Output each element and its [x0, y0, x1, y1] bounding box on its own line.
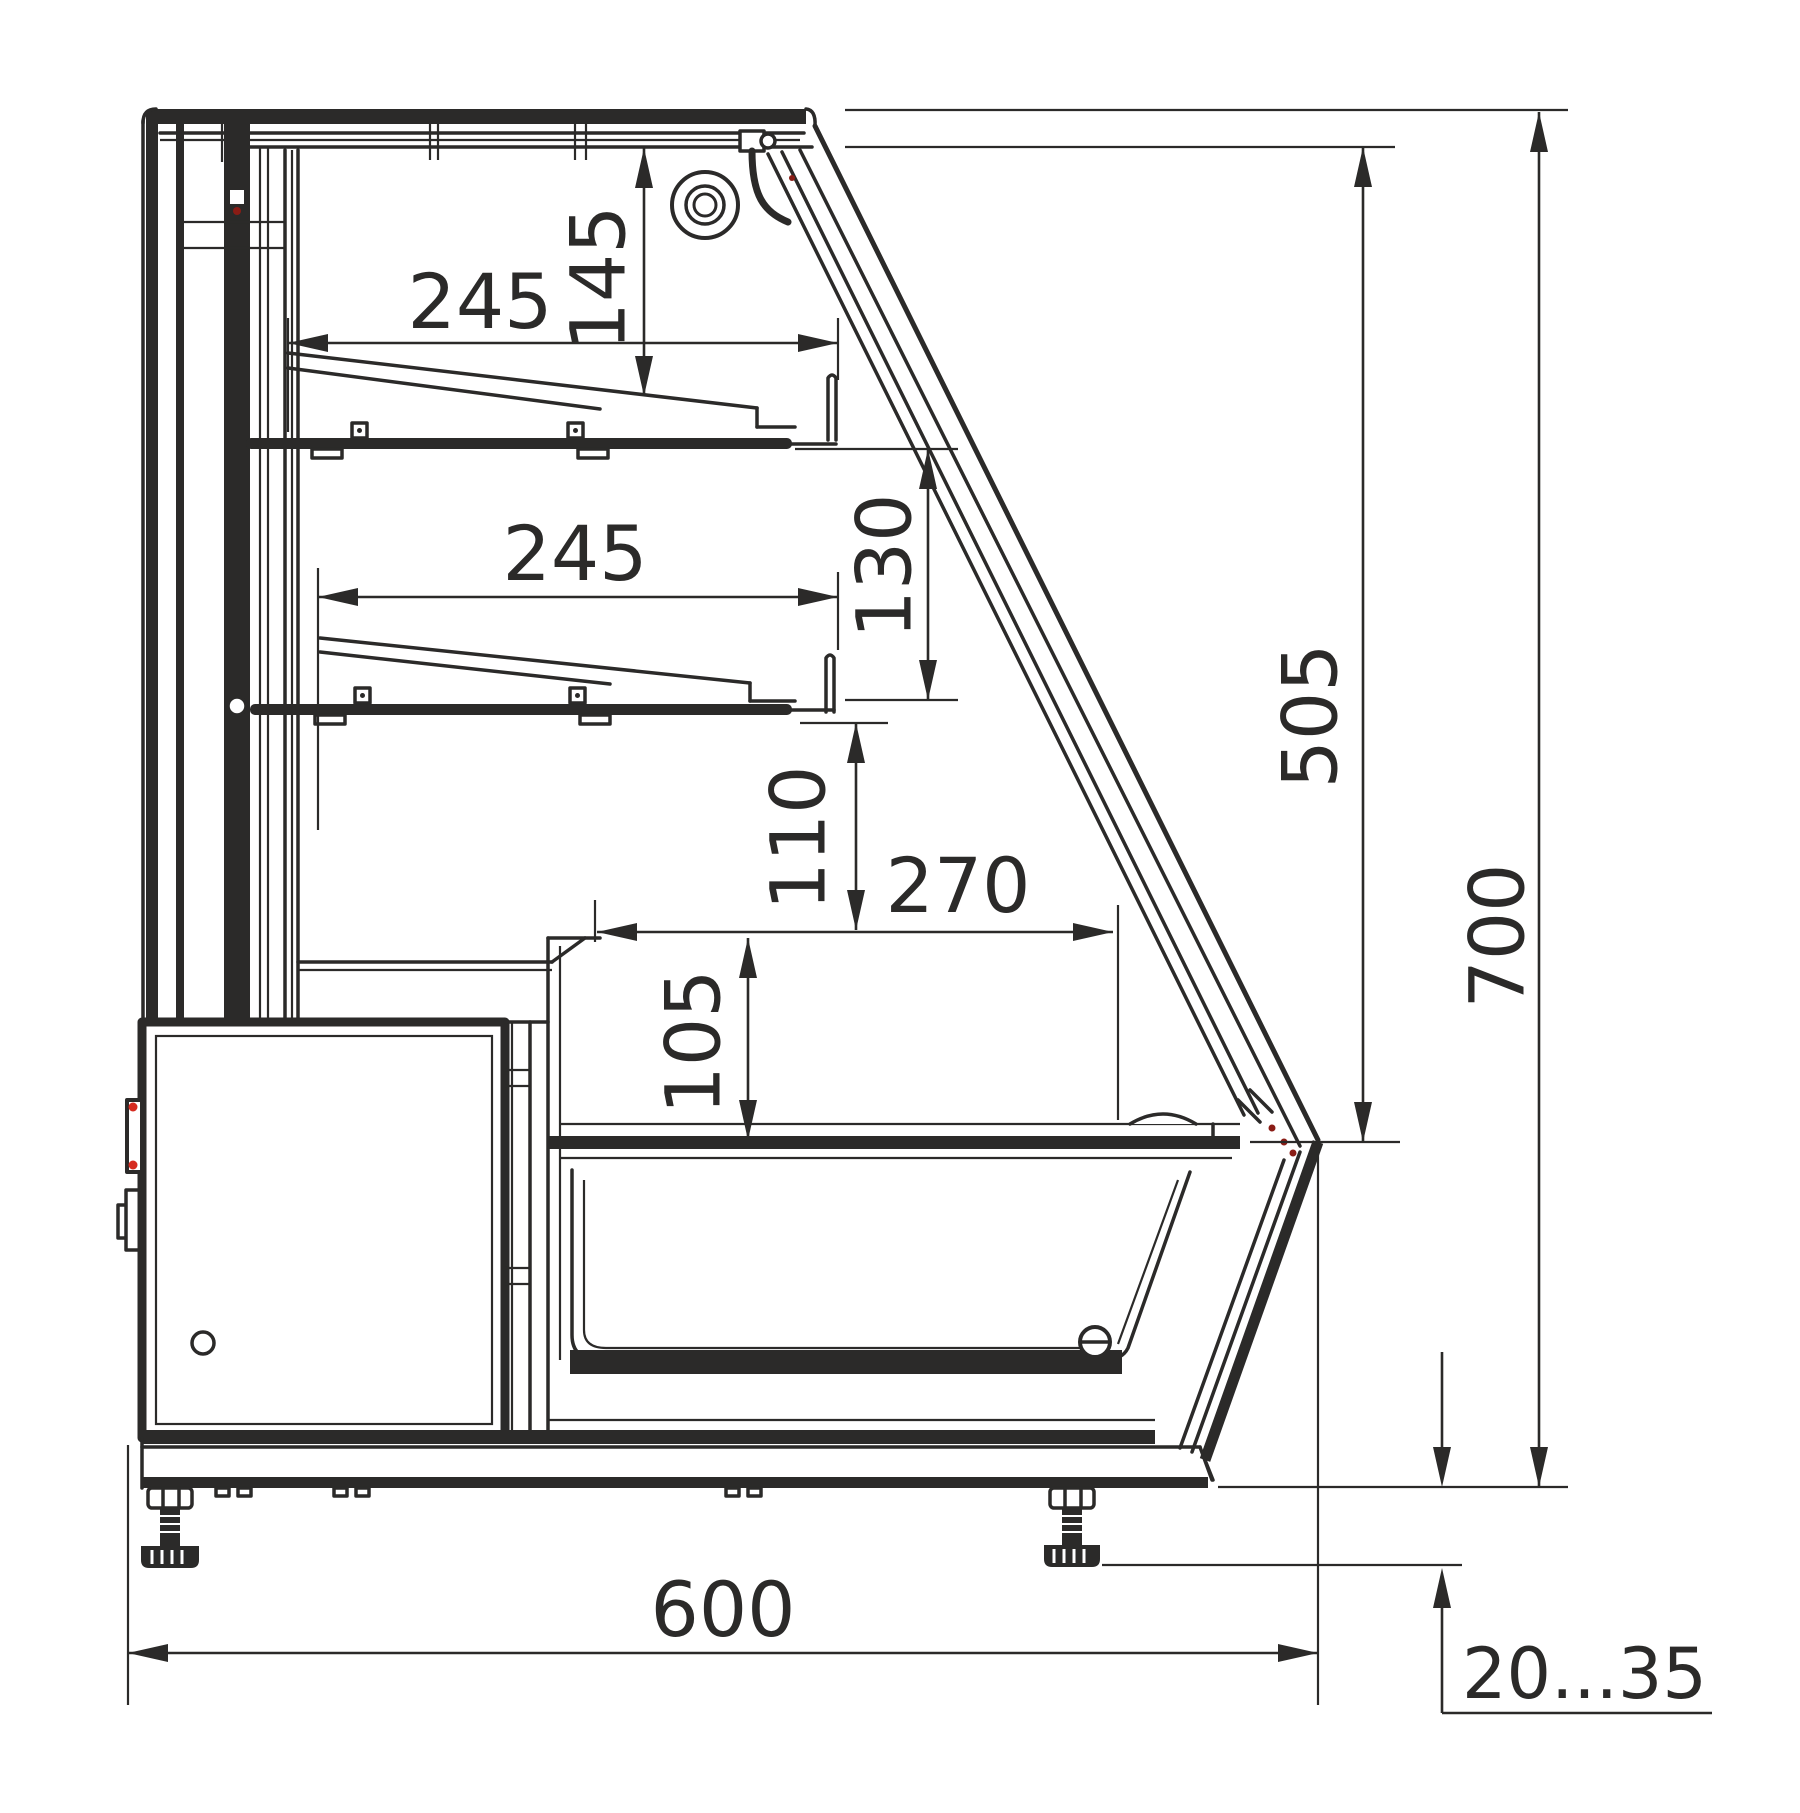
deck-chamfer [552, 938, 585, 962]
glass-seal-dot [1269, 1125, 1276, 1132]
extension-lines [128, 110, 1568, 1705]
door-screw [192, 1332, 214, 1354]
glass-top-seal-dot [789, 175, 795, 181]
foot-pad [141, 1546, 199, 1568]
pulley [672, 172, 738, 238]
dim-well-depth: 105 [649, 938, 757, 1140]
shelf-clip [580, 715, 610, 724]
shelf-clip [578, 449, 608, 458]
shelf-clip [315, 715, 345, 724]
front-bumper [1205, 1142, 1318, 1460]
dim-label-shelf-upper-clearance: 145 [554, 205, 643, 350]
glass-front [672, 126, 1318, 1157]
dim-label-glass-front-height: 505 [1266, 643, 1355, 788]
glass-seal-dot [1290, 1150, 1297, 1157]
shelf-lower [250, 638, 834, 724]
dim-overall-height: 700 [1453, 112, 1548, 1487]
front-panel [1180, 1142, 1318, 1480]
door-hinge [127, 1100, 142, 1172]
foot-stem [1062, 1508, 1082, 1545]
dim-label-leg-adjustment: 20...35 [1462, 1633, 1707, 1715]
tub-screw [1080, 1327, 1110, 1357]
dim-label-shelf-upper-depth: 245 [407, 257, 552, 346]
foot-pad [1044, 1545, 1100, 1567]
dim-shelf-lower-depth: 245 [318, 509, 838, 606]
canopy-corner [806, 109, 815, 126]
bracket-bolt [761, 134, 775, 148]
dim-well-top-clearance: 110 [754, 723, 865, 930]
base-clip [216, 1488, 761, 1496]
well-tub [548, 1170, 1190, 1420]
column-notch [230, 190, 244, 204]
dim-glass-front-height: 505 [1266, 147, 1372, 1142]
shelf-upper [246, 353, 836, 458]
dim-label-overall-depth: 600 [650, 1565, 795, 1654]
dim-label-well-top-clearance: 110 [754, 765, 843, 910]
switch-bracket [118, 1190, 140, 1250]
dim-shelf-lower-clearance: 130 [840, 449, 937, 700]
shelf-clip [312, 449, 342, 458]
dim-label-shelf-lower-depth: 245 [502, 509, 647, 598]
foot-left [141, 1488, 199, 1568]
shelf-bracket-peg [352, 423, 583, 438]
base [142, 1430, 1212, 1496]
machine-compartment [118, 1022, 548, 1438]
drawing-canvas: 245 145 245 130 110 270 105 505 [0, 0, 1800, 1813]
compartment-side-strip [505, 1022, 548, 1438]
column-indicator-dot [233, 207, 241, 215]
foot-right [1044, 1488, 1100, 1567]
dim-label-well-opening-depth: 270 [885, 841, 1030, 930]
hinge-indicator-dot [129, 1161, 138, 1170]
column-bolt [228, 697, 246, 715]
foot-stem [160, 1508, 180, 1546]
dim-label-well-depth: 105 [649, 969, 738, 1114]
technical-drawing-page: 245 145 245 130 110 270 105 505 [0, 0, 1800, 1813]
dim-shelf-upper-clearance: 145 [554, 148, 653, 396]
dim-overall-depth: 600 [128, 1565, 1318, 1662]
dim-label-shelf-lower-clearance: 130 [840, 493, 929, 638]
back-wall [143, 112, 298, 1022]
dim-leg-adjustment: 20...35 [1433, 1352, 1712, 1715]
counter-sill [548, 1114, 1240, 1158]
compartment-door [156, 1036, 492, 1424]
display-well [298, 938, 1240, 1440]
shelf-front-lip [790, 655, 834, 712]
gasket-bump [1130, 1114, 1196, 1124]
canopy-slots [222, 124, 586, 162]
hinge-indicator-dot [129, 1103, 138, 1112]
shelf-front-lip [792, 375, 836, 444]
shelf-bracket-peg [355, 688, 585, 703]
dim-label-overall-height: 700 [1453, 863, 1542, 1008]
